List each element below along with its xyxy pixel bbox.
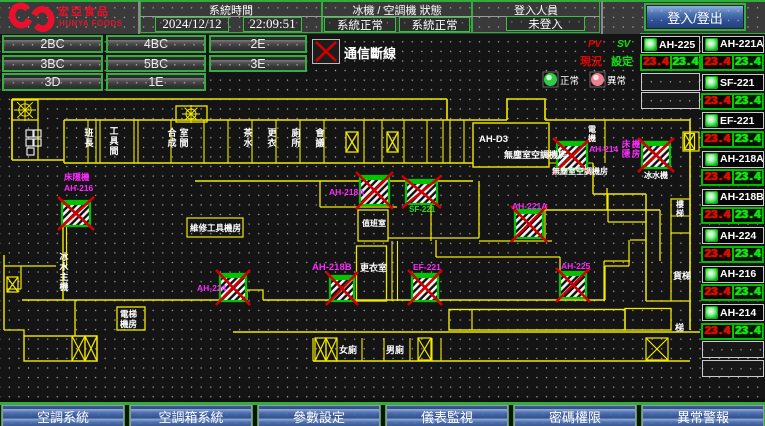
- svg-text:AH-D3: AH-D3: [479, 134, 508, 145]
- svg-text:機: 機: [588, 133, 596, 143]
- svg-text:SF-221: SF-221: [409, 205, 436, 214]
- svg-text:無塵室空調機房: 無塵室空調機房: [504, 149, 567, 160]
- svg-text:會: 會: [315, 127, 325, 138]
- svg-text:無塵室空調機房: 無塵室空調機房: [552, 166, 608, 176]
- svg-text:AH-225: AH-225: [561, 261, 591, 271]
- svg-text:茶: 茶: [242, 127, 253, 138]
- svg-text:冰: 冰: [59, 251, 69, 262]
- svg-text:AH-224: AH-224: [197, 283, 227, 293]
- svg-text:水: 水: [59, 261, 69, 272]
- svg-text:工: 工: [109, 126, 118, 136]
- svg-text:更衣室: 更衣室: [360, 262, 387, 273]
- svg-text:機: 機: [632, 139, 641, 149]
- svg-text:成: 成: [167, 137, 176, 148]
- svg-text:HUNYA FOODS: HUNYA FOODS: [59, 19, 123, 28]
- svg-text:室: 室: [179, 127, 188, 138]
- svg-text:間: 間: [179, 138, 188, 148]
- svg-text:合: 合: [167, 127, 177, 138]
- svg-text:電梯: 電梯: [120, 309, 138, 319]
- svg-text:正常: 正常: [560, 75, 579, 87]
- svg-text:衣: 衣: [267, 137, 276, 148]
- svg-text:床: 床: [622, 139, 631, 149]
- svg-text:梯: 梯: [676, 208, 684, 218]
- svg-text:男廁: 男廁: [386, 344, 404, 355]
- svg-text:AH-221A: AH-221A: [512, 201, 547, 211]
- svg-text:更: 更: [267, 128, 277, 138]
- svg-text:所: 所: [291, 137, 300, 148]
- svg-text:主: 主: [59, 271, 68, 282]
- svg-text:AH-216: AH-216: [64, 183, 94, 193]
- svg-text:長: 長: [84, 138, 94, 148]
- svg-text:床隱機: 床隱機: [64, 172, 90, 182]
- svg-text:女廁: 女廁: [339, 344, 357, 355]
- svg-text:值班室: 值班室: [362, 218, 386, 228]
- svg-text:具: 具: [108, 136, 118, 146]
- svg-text:間: 間: [109, 146, 118, 156]
- svg-text:異常: 異常: [607, 75, 626, 87]
- svg-text:宏亞食品: 宏亞食品: [58, 4, 110, 18]
- svg-text:房: 房: [632, 149, 641, 159]
- svg-text:機: 機: [59, 281, 68, 292]
- svg-text:EF-221: EF-221: [413, 262, 441, 272]
- svg-text:AH-218B: AH-218B: [312, 262, 352, 273]
- svg-text:冰水機: 冰水機: [644, 170, 668, 180]
- svg-text:班: 班: [84, 127, 93, 138]
- svg-text:機房: 機房: [120, 319, 137, 329]
- svg-text:貨梯: 貨梯: [673, 270, 691, 281]
- svg-text:議: 議: [315, 137, 324, 148]
- svg-text:AH-218A: AH-218A: [329, 187, 364, 197]
- svg-text:廁: 廁: [291, 127, 300, 138]
- svg-text:維修工具機房: 維修工具機房: [190, 223, 241, 233]
- svg-text:電: 電: [588, 124, 596, 134]
- svg-text:梯: 梯: [675, 322, 684, 333]
- svg-text:AH-214: AH-214: [589, 144, 619, 154]
- svg-text:隱: 隱: [622, 149, 631, 159]
- svg-text:水: 水: [243, 137, 253, 148]
- svg-text:樓: 樓: [676, 199, 684, 209]
